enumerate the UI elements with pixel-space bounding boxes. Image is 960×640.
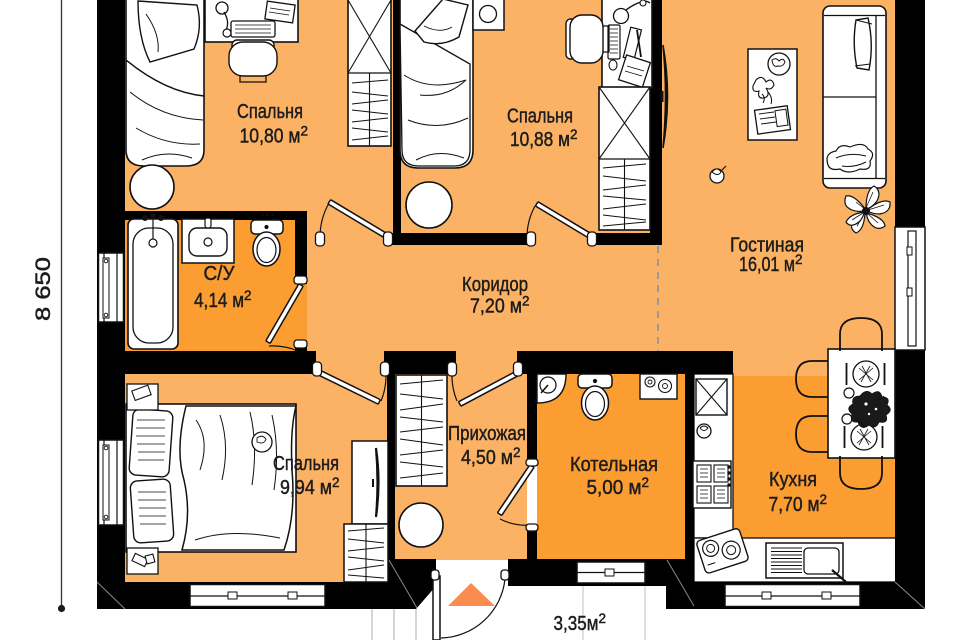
svg-text:2: 2 [820, 492, 828, 507]
svg-text:2: 2 [522, 294, 530, 309]
svg-text:С/У: С/У [204, 263, 235, 285]
svg-text:Спальня: Спальня [507, 106, 573, 128]
svg-text:2: 2 [244, 288, 252, 303]
svg-text:Спальня: Спальня [273, 453, 339, 475]
svg-text:2: 2 [795, 252, 803, 267]
svg-text:2: 2 [570, 127, 578, 142]
svg-text:4,50 м: 4,50 м [461, 447, 513, 469]
svg-text:3,35м: 3,35м [554, 613, 599, 635]
svg-text:9,94 м: 9,94 м [280, 477, 332, 499]
svg-text:7,20 м: 7,20 м [470, 296, 522, 318]
svg-text:Кухня: Кухня [769, 469, 817, 491]
svg-text:2: 2 [513, 445, 521, 460]
svg-text:2: 2 [332, 475, 340, 490]
svg-text:2: 2 [599, 611, 607, 626]
svg-text:2: 2 [642, 475, 650, 490]
svg-text:10,80 м: 10,80 м [240, 126, 301, 148]
svg-text:10,88 м: 10,88 м [510, 129, 570, 151]
svg-text:2: 2 [301, 124, 309, 139]
svg-text:8 650: 8 650 [31, 257, 55, 321]
svg-text:Спальня: Спальня [237, 101, 303, 123]
svg-text:16,01 м: 16,01 м [739, 254, 795, 276]
svg-text:7,70 м: 7,70 м [769, 494, 820, 516]
svg-text:Коридор: Коридор [462, 274, 528, 296]
svg-text:Прихожая: Прихожая [448, 423, 526, 445]
svg-text:Котельная: Котельная [570, 454, 658, 476]
svg-text:5,00 м: 5,00 м [587, 477, 642, 499]
svg-text:4,14 м: 4,14 м [194, 290, 244, 312]
